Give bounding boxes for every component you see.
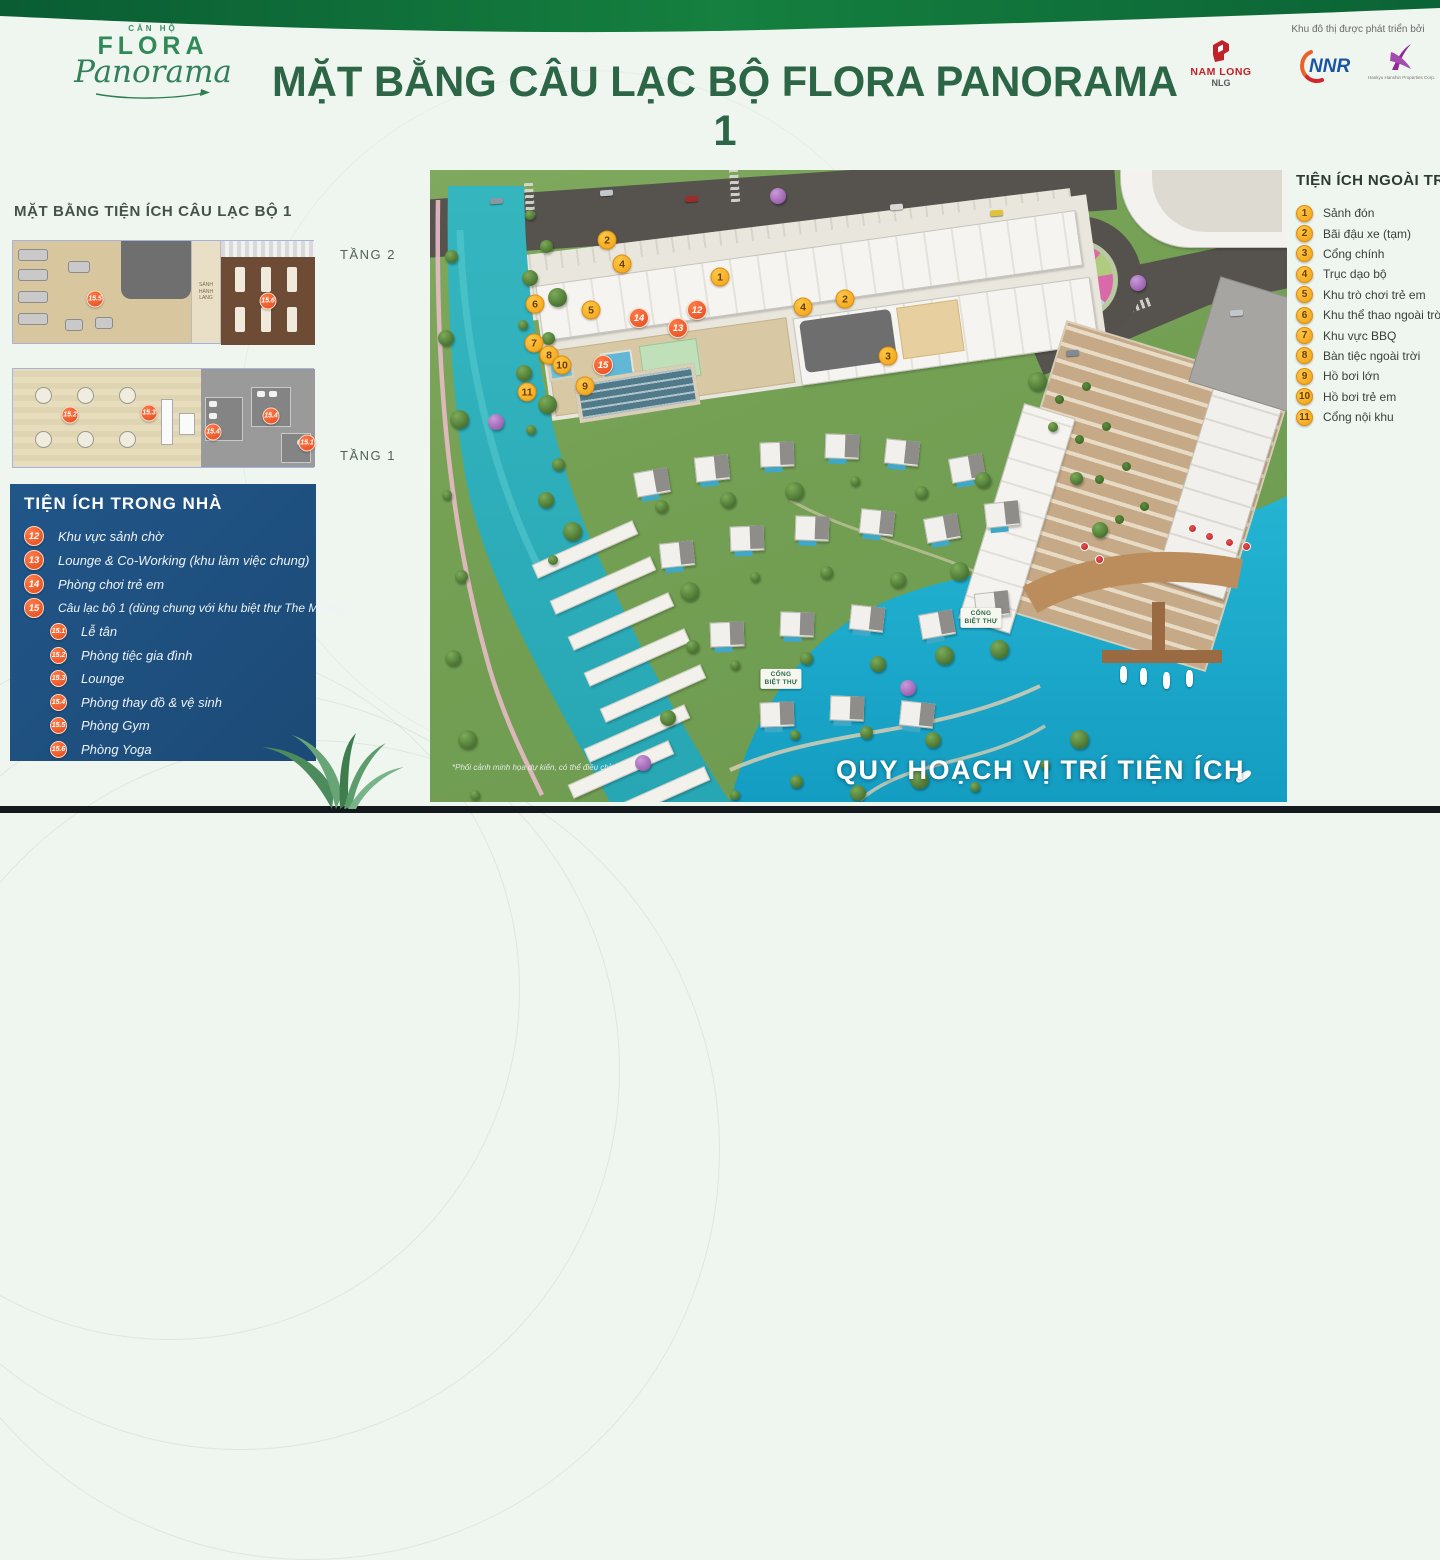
item-label: Phòng Gym [81, 718, 150, 733]
villa [859, 508, 895, 536]
nnr-text: NNR [1309, 56, 1350, 77]
table [35, 387, 52, 404]
tree [800, 652, 813, 665]
tree [538, 492, 554, 508]
tree [450, 410, 469, 429]
list-item: 14 Phòng chơi trẻ em [24, 572, 302, 596]
yoga-mat [287, 307, 297, 332]
table [77, 387, 94, 404]
hankyu-caption: Hankyu Hanshin Properties Corp. [1368, 75, 1434, 80]
list-item: 2Bãi đậu xe (tạm) [1296, 223, 1438, 243]
car [1230, 310, 1243, 317]
red-umbrella [1095, 555, 1104, 564]
partners-note: Khu đô thị được phát triển bởi [1282, 24, 1434, 35]
tree [470, 790, 480, 800]
tree [655, 500, 668, 513]
tree [522, 270, 538, 286]
item-label: Bãi đậu xe (tạm) [1323, 227, 1411, 241]
amenity-marker-4: 4 [794, 298, 813, 317]
marina-deck [990, 530, 1287, 730]
bar-counter [161, 399, 173, 445]
gate-label: CỔNG BIỆT THỰ [760, 669, 801, 689]
list-item: 9Hồ bơi lớn [1296, 366, 1438, 386]
item-label: Cổng nội khu [1323, 410, 1394, 424]
red-umbrella [1205, 532, 1214, 541]
item-badge: 9 [1296, 368, 1313, 385]
nam-long-name: NAM LONG [1188, 66, 1254, 78]
item-label: Sảnh đón [1323, 206, 1374, 220]
fixture [269, 391, 277, 397]
item-badge: 4 [1296, 266, 1313, 283]
item-label: Lễ tân [81, 624, 117, 639]
tree [820, 566, 833, 579]
item-badge: 6 [1296, 307, 1313, 324]
tree [680, 582, 699, 601]
item-badge: 15.4 [50, 694, 67, 711]
item-badge: 11 [1296, 409, 1313, 426]
boat [1140, 668, 1147, 685]
outdoor-panel-title: TIỆN ÍCH NGOÀI TRỜI [1296, 172, 1438, 189]
villa [760, 441, 795, 467]
car [1066, 350, 1079, 357]
villa [780, 611, 815, 637]
nam-long-icon [1208, 38, 1234, 64]
car [990, 210, 1003, 217]
tree [686, 640, 699, 653]
flowering-tree [488, 414, 504, 430]
yoga-mat [235, 307, 245, 332]
logo-arrow-icon [88, 87, 218, 101]
item-label: Phòng tiệc gia đình [81, 648, 192, 663]
list-item: 3Cổng chính [1296, 244, 1438, 264]
table [119, 387, 136, 404]
fixture [257, 391, 265, 397]
item-badge: 8 [1296, 347, 1313, 364]
nnr-swoosh-icon: NNR [1297, 46, 1353, 86]
fixture [209, 413, 217, 419]
villa [984, 500, 1020, 528]
tree [526, 425, 536, 435]
item-badge: 15.6 [50, 741, 67, 758]
red-umbrella [1225, 538, 1234, 547]
amenity-marker-11: 11 [518, 383, 537, 402]
palm-tree [1082, 382, 1091, 391]
gym-equipment [95, 317, 113, 329]
tree [445, 650, 461, 666]
tree [660, 710, 676, 726]
flowering-tree [770, 188, 786, 204]
amenity-marker-6: 6 [526, 295, 545, 314]
amenity-marker-2: 2 [598, 231, 617, 250]
villa [830, 695, 865, 721]
gym-equipment [65, 319, 83, 331]
tree [442, 490, 452, 500]
item-label: Bàn tiệc ngoài trời [1323, 349, 1420, 363]
item-label: Hồ bơi trẻ em [1323, 390, 1396, 404]
amenity-marker-15.6: 15.6 [260, 293, 277, 310]
item-label: Hồ bơi lớn [1323, 369, 1379, 383]
palm-tree [1122, 462, 1131, 471]
list-item: 8Bàn tiệc ngoài trời [1296, 346, 1438, 366]
list-item: 15 Câu lạc bộ 1 (dùng chung với khu biệt… [24, 596, 302, 620]
indoor-amenities-panel: TIỆN ÍCH TRONG NHÀ 12 Khu vực sảnh chờ 1… [10, 484, 316, 761]
table [119, 431, 136, 448]
item-badge: 13 [24, 550, 44, 570]
tree [525, 210, 535, 220]
car [890, 204, 903, 211]
item-badge: 14 [24, 574, 44, 594]
tree [720, 492, 736, 508]
yoga-mat [287, 267, 297, 292]
item-label: Phòng thay đồ & vệ sinh [81, 695, 222, 710]
red-umbrella [1242, 542, 1251, 551]
floorplan-level2: SẢNH HÀNH LANG 15.515.6 [12, 240, 314, 344]
villa [659, 540, 695, 568]
item-badge: 10 [1296, 388, 1313, 405]
boat [1186, 670, 1193, 687]
weights-area [121, 241, 191, 299]
item-label: Khu trò chơi trẻ em [1323, 288, 1426, 302]
list-item: 13 Lounge & Co-Working (khu làm việc chu… [24, 548, 302, 572]
tree [750, 572, 760, 582]
outdoor-amenities-panel: TIỆN ÍCH NGOÀI TRỜI 1Sảnh đón2Bãi đậu xe… [1296, 172, 1438, 427]
list-subitem: 15.4 Phòng thay đồ & vệ sinh [24, 691, 302, 715]
logo-script: Panorama [48, 57, 258, 88]
nam-long-logo: NAM LONG NLG [1188, 38, 1254, 88]
tree [1070, 472, 1083, 485]
item-label: Lounge & Co-Working (khu làm việc chung) [58, 553, 309, 568]
site-plan-map: CỔNG BIỆT THỰCỔNG BIỆT THỰ 1223445678910… [430, 170, 1287, 802]
tree [990, 640, 1009, 659]
palm-tree [1102, 422, 1111, 431]
flowering-tree [900, 680, 916, 696]
amenity-marker-9: 9 [576, 377, 595, 396]
tree [458, 730, 477, 749]
flowering-tree [1130, 275, 1146, 291]
list-item: 1Sảnh đón [1296, 203, 1438, 223]
item-badge: 12 [24, 526, 44, 546]
tree [925, 732, 941, 748]
car [490, 198, 503, 205]
amenity-marker-14: 14 [629, 308, 649, 328]
tree [860, 726, 873, 739]
amenity-marker-15.3: 15.3 [141, 405, 158, 422]
list-item: 5Khu trò chơi trẻ em [1296, 285, 1438, 305]
tree [542, 332, 555, 345]
item-label: Cổng chính [1323, 247, 1384, 261]
floorplan-level1: 15.215.315.415.415.1 [12, 368, 314, 468]
item-badge: 15.1 [50, 623, 67, 640]
yoga-mat [261, 267, 271, 292]
list-item: 6Khu thể thao ngoài trời [1296, 305, 1438, 325]
treadmill [18, 249, 48, 261]
tree [538, 395, 557, 414]
palm-tree [1095, 475, 1104, 484]
boat [1120, 666, 1127, 683]
car [685, 196, 698, 203]
corridor-hatch [221, 241, 315, 257]
item-label: Lounge [81, 671, 124, 686]
tree [790, 730, 800, 740]
tree [850, 785, 866, 801]
amenity-marker-3: 3 [879, 347, 898, 366]
nnr-logo: NNR [1292, 46, 1358, 91]
red-umbrella [1188, 524, 1197, 533]
amenity-marker-15.1: 15.1 [299, 435, 316, 452]
lobby-roof [896, 299, 965, 359]
flora-panorama-logo: CĂN HỘ FLORA Panorama [48, 24, 258, 106]
palm-tree [1075, 435, 1084, 444]
amenity-marker-5: 5 [582, 301, 601, 320]
tree [790, 775, 803, 788]
amenity-marker-4: 4 [613, 255, 632, 274]
amenity-marker-1: 1 [711, 268, 730, 287]
tree [540, 240, 553, 253]
tree [516, 365, 532, 381]
lobby-label: SẢNH HÀNH LANG [192, 282, 220, 302]
treadmill [18, 291, 48, 303]
map-disclaimer: *Phối cảnh minh họa dự kiến, có thể điều… [452, 763, 622, 772]
tree [870, 656, 886, 672]
tree [935, 646, 954, 665]
tree [455, 570, 468, 583]
tree [563, 522, 582, 541]
amenity-marker-10: 10 [553, 356, 572, 375]
tree [890, 572, 906, 588]
palm-tree [1055, 395, 1064, 404]
boat [1163, 672, 1170, 689]
amenity-marker-15: 15 [593, 355, 613, 375]
list-item: 7Khu vực BBQ [1296, 325, 1438, 345]
gate-label: CỔNG BIỆT THỰ [960, 608, 1001, 628]
treadmill [18, 269, 48, 281]
villa [825, 433, 860, 459]
item-badge: 15.2 [50, 647, 67, 664]
tree [1092, 522, 1108, 538]
list-item: 10Hồ bơi trẻ em [1296, 387, 1438, 407]
amenity-marker-15.4: 15.4 [263, 408, 280, 425]
item-label: Trục dạo bộ [1323, 267, 1387, 281]
map-overlay-title: QUY HOẠCH VỊ TRÍ TIỆN ÍCH [836, 755, 1245, 786]
gym-equipment [68, 261, 90, 273]
tree [548, 555, 558, 565]
list-item: 4Trục dạo bộ [1296, 264, 1438, 284]
tree [1048, 422, 1058, 432]
outdoor-list: 1Sảnh đón2Bãi đậu xe (tạm)3Cổng chính4Tr… [1296, 203, 1438, 427]
amenity-marker-15.5: 15.5 [87, 291, 104, 308]
villa [730, 525, 765, 551]
hankyu-hanshin-logo: Hankyu Hanshin Properties Corp. [1368, 42, 1434, 80]
tree [438, 330, 454, 346]
bottom-bar [0, 806, 1440, 813]
tree [1028, 372, 1047, 391]
list-subitem: 15.3 Lounge [24, 667, 302, 691]
indoor-panel-title: TIỆN ÍCH TRONG NHÀ [24, 494, 302, 514]
list-item: 11Cổng nội khu [1296, 407, 1438, 427]
tree [445, 250, 458, 263]
item-badge: 15.5 [50, 717, 67, 734]
villa [795, 515, 830, 541]
item-badge: 15.3 [50, 670, 67, 687]
floor2-label: TẦNG 2 [340, 247, 396, 262]
tree [785, 482, 804, 501]
item-badge: 5 [1296, 286, 1313, 303]
item-label: Khu thể thao ngoài trời [1323, 308, 1440, 322]
amenity-marker-2: 2 [836, 290, 855, 309]
list-subitem: 15.2 Phòng tiệc gia đình [24, 644, 302, 668]
tree [915, 486, 928, 499]
left-panel-title: MẶT BẰNG TIỆN ÍCH CÂU LẠC BỘ 1 [14, 203, 292, 220]
palm-leaf-decor [252, 733, 412, 809]
palm-tree [1115, 515, 1124, 524]
yoga-mat [261, 307, 271, 332]
amenity-marker-15.4: 15.4 [205, 424, 222, 441]
bg-wave-arc [0, 740, 720, 1560]
amenity-marker-12: 12 [687, 300, 707, 320]
villa [899, 700, 935, 728]
list-item: 12 Khu vực sảnh chờ [24, 524, 302, 548]
item-label: Câu lạc bộ 1 (dùng chung với khu biệt th… [58, 601, 346, 615]
villa [760, 701, 795, 727]
lobby-corridor: SẢNH HÀNH LANG [191, 241, 221, 343]
item-label: Phòng Yoga [81, 742, 152, 757]
tree [975, 472, 991, 488]
tree [1070, 730, 1089, 749]
tree [552, 458, 565, 471]
car [600, 190, 613, 197]
villa [849, 604, 885, 632]
amenity-marker-15.2: 15.2 [62, 407, 79, 424]
item-label: Khu vực sảnh chờ [58, 529, 163, 544]
tree [730, 660, 740, 670]
list-subitem: 15.1 Lễ tân [24, 620, 302, 644]
item-badge: 15 [24, 598, 44, 618]
tree [950, 562, 969, 581]
table [77, 431, 94, 448]
yoga-mat [235, 267, 245, 292]
item-label: Phòng chơi trẻ em [58, 577, 164, 592]
amenity-marker-13: 13 [668, 318, 688, 338]
tree [730, 790, 740, 800]
palm-tree [1140, 502, 1149, 511]
table [35, 431, 52, 448]
tree [850, 476, 860, 486]
page-title: MẶT BẰNG CÂU LẠC BỘ FLORA PANORAMA 1 [264, 58, 1186, 156]
tree [518, 320, 528, 330]
item-badge: 7 [1296, 327, 1313, 344]
item-label: Khu vực BBQ [1323, 329, 1396, 343]
villa [694, 454, 730, 482]
item-badge: 2 [1296, 225, 1313, 242]
nam-long-sub: NLG [1188, 78, 1254, 88]
treadmill [18, 313, 48, 325]
flowering-tree [635, 755, 651, 771]
item-badge: 3 [1296, 245, 1313, 262]
pantry-island [179, 413, 195, 435]
floor1-label: TẦNG 1 [340, 448, 396, 463]
villa [710, 621, 745, 647]
hankyu-h-icon [1384, 42, 1418, 74]
item-badge: 1 [1296, 205, 1313, 222]
red-umbrella [1080, 542, 1089, 551]
villa [884, 438, 920, 466]
fixture [209, 401, 217, 407]
tree [548, 288, 567, 307]
